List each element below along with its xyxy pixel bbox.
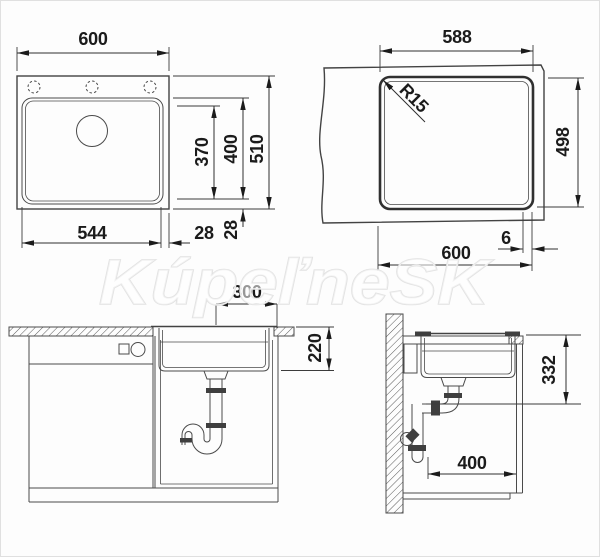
dim-label-rim-right: 28 — [194, 223, 214, 243]
rim-profile-right — [505, 332, 520, 337]
dim-label-cutout-width: 588 — [442, 27, 471, 47]
rim-profile-left — [415, 332, 431, 337]
dim-label-sink-width: 600 — [78, 29, 107, 49]
bowl-side-inner — [425, 338, 512, 374]
dim-label-corner-radius: R15 — [396, 80, 433, 117]
wall-section — [386, 314, 403, 513]
drain-flange-side — [441, 378, 466, 387]
dim-label-drain-height: 332 — [539, 355, 559, 384]
dim-label-bowl-width: 544 — [77, 223, 106, 243]
drain-flange-front — [204, 371, 228, 379]
rear-support-bracket — [404, 344, 417, 373]
watermark-text: KúpeľneSK — [99, 246, 494, 318]
tap-hole-right — [144, 81, 156, 93]
dim-label-bowl-depth: 400 — [221, 134, 241, 163]
dim-label-rim-bottom: 28 — [221, 220, 241, 240]
pipe-nut — [408, 445, 426, 451]
sink-outline — [17, 76, 169, 209]
bowl-side-outer — [421, 336, 515, 378]
bowl-outline-outer — [22, 98, 163, 204]
sink-plan-view: 600 370 400 510 28 544 28 — [17, 29, 275, 248]
dim-label-edge-gap: 6 — [501, 228, 511, 248]
sink-technical-drawing-page: 600 370 400 510 28 544 28 R15 — [0, 0, 600, 557]
pipe-nut — [206, 388, 226, 393]
pipe-nut — [206, 423, 226, 428]
countertop-section-right — [274, 327, 294, 336]
appliance-control-knob — [131, 343, 145, 357]
countertop-section-left — [9, 327, 153, 336]
pipe-nut — [180, 438, 192, 443]
tap-hole-left — [28, 81, 40, 93]
angled-fitting — [405, 428, 419, 442]
bowl-section-inner — [163, 330, 266, 368]
cutout-plan-view: R15 588 498 600 6 — [320, 27, 584, 271]
pipe-nut — [431, 401, 440, 416]
dim-label-cutout-height: 498 — [553, 127, 573, 156]
technical-drawing-canvas: 600 370 400 510 28 544 28 R15 — [1, 1, 600, 557]
bowl-section-outer — [159, 328, 269, 371]
dim-label-min-depth: 400 — [457, 453, 486, 473]
dim-label-bowl-height: 220 — [305, 333, 325, 362]
side-section-view: 332 400 — [386, 314, 581, 513]
dim-label-sink-depth: 510 — [247, 134, 267, 163]
countertop-slab — [320, 65, 544, 223]
drain-hole — [77, 116, 108, 147]
trap-inner — [204, 428, 210, 442]
tap-hole-center — [86, 81, 98, 93]
appliance-control-square — [119, 344, 129, 354]
dim-label-inner-depth: 370 — [192, 137, 212, 166]
pipe-nut — [444, 393, 462, 398]
trap-outer — [192, 428, 222, 454]
